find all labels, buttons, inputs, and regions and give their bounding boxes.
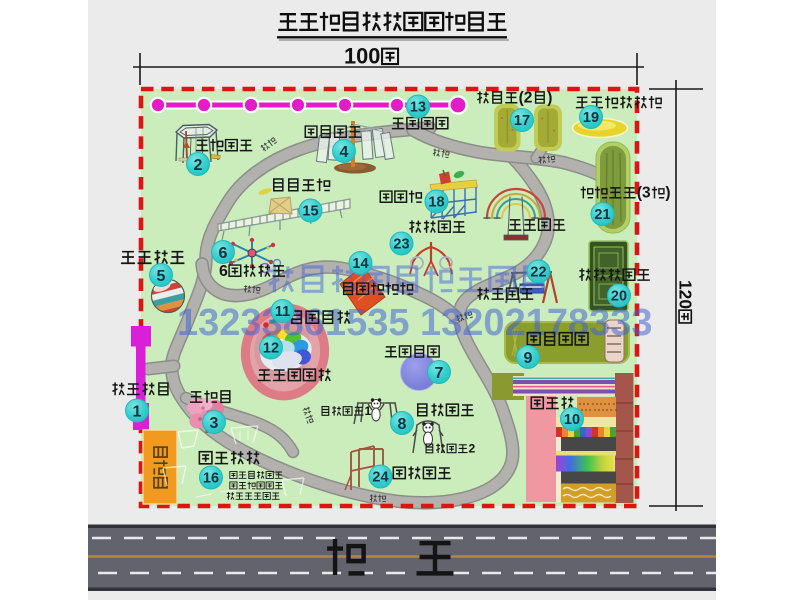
svg-text:1: 1 — [133, 403, 142, 420]
svg-text:(2: (2 — [519, 90, 533, 107]
svg-text:15: 15 — [302, 204, 318, 220]
svg-text:): ) — [665, 185, 670, 202]
svg-text:16: 16 — [203, 471, 219, 487]
svg-text:10: 10 — [564, 412, 580, 428]
svg-text:1: 1 — [365, 404, 372, 418]
svg-text:2: 2 — [194, 157, 203, 174]
svg-text:2: 2 — [469, 442, 476, 456]
svg-text:120: 120 — [675, 280, 695, 309]
svg-text:(3: (3 — [637, 185, 651, 202]
svg-text:21: 21 — [594, 207, 610, 223]
svg-text:20: 20 — [611, 289, 627, 305]
svg-text:9: 9 — [524, 350, 533, 367]
svg-text:24: 24 — [372, 470, 388, 486]
svg-text:8: 8 — [398, 416, 407, 433]
svg-text:22: 22 — [530, 265, 546, 281]
svg-text:5: 5 — [157, 268, 166, 285]
svg-text:19: 19 — [583, 110, 599, 126]
svg-text:4: 4 — [340, 144, 349, 161]
svg-text:23: 23 — [393, 237, 409, 253]
svg-text:7: 7 — [435, 365, 444, 382]
svg-text:6: 6 — [219, 245, 228, 262]
svg-text:11: 11 — [275, 304, 290, 320]
svg-text:12: 12 — [263, 341, 279, 357]
svg-text:13: 13 — [410, 100, 426, 116]
svg-text:100: 100 — [344, 44, 380, 69]
svg-text:14: 14 — [352, 256, 368, 272]
svg-text:6: 6 — [219, 263, 228, 280]
svg-text:17: 17 — [514, 113, 530, 129]
svg-text:): ) — [547, 90, 552, 107]
svg-text:18: 18 — [428, 195, 444, 211]
svg-text:3: 3 — [210, 415, 219, 432]
